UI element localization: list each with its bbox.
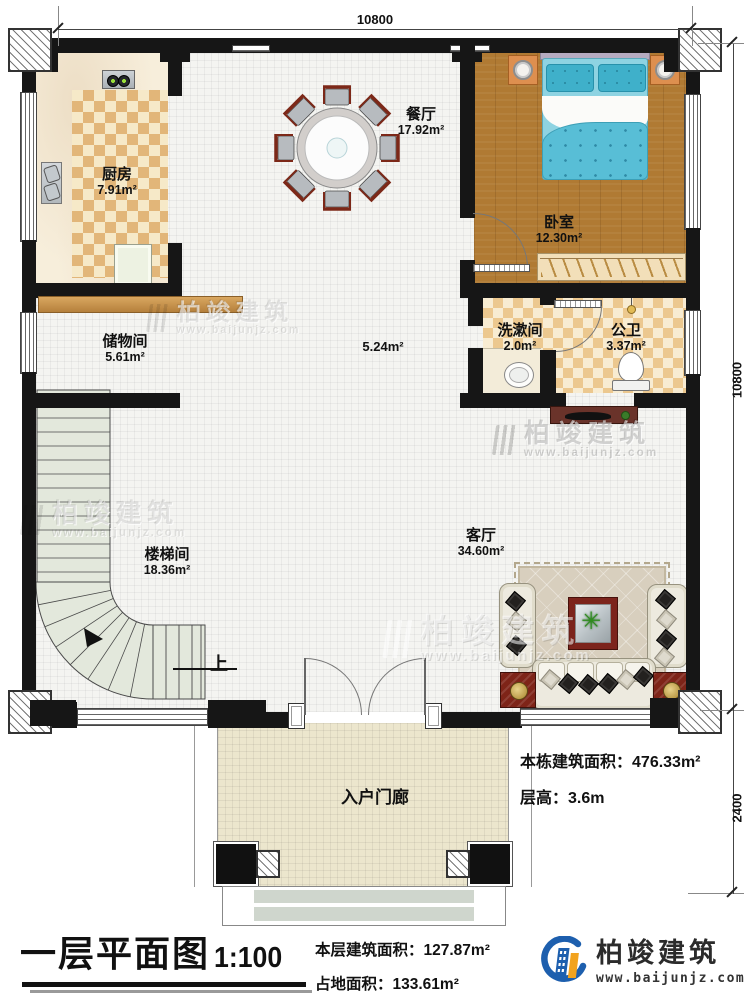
land-area-note: 占地面积：133.61m² [315,972,459,994]
porch-column [468,842,512,886]
wall [22,393,180,408]
wall [460,283,700,298]
floor-height-note: 层高：3.6m [520,784,604,808]
building-area-note: 本栋建筑面积：476.33m² [520,748,701,772]
room-label-stairwell: 楼梯间 18.36m² [144,546,191,578]
extension-line [700,710,744,711]
entry-door-post [288,703,305,729]
window [684,94,701,230]
watermark: 柏竣建筑www.baijunjz.com [385,614,591,664]
bed-pillow [546,64,594,92]
wall [262,712,290,728]
window [20,312,37,374]
dimension-tick [726,703,737,714]
ceiling-light [627,305,636,314]
corner-pier [8,28,52,72]
porch-step [252,905,476,923]
kitchen-cabinet [114,244,152,286]
scale-label: 1:100 [214,944,282,973]
wall [22,38,700,53]
end-table [500,672,536,708]
room-label-living: 客厅 34.60m² [458,527,505,559]
wall [460,38,475,218]
wall [168,38,182,96]
up-label: 上 [210,650,228,676]
room-label-toilet: 公卫 3.37m² [606,322,646,354]
entry-door-leaf [304,658,306,715]
corner-pier [678,28,722,72]
wall [442,712,522,728]
room-label-kitchen: 厨房 7.91m² [97,166,137,198]
plan-title: 一层平面图 [20,936,210,972]
watermark-logo-icon [146,304,169,332]
watermark-logo-icon [20,505,45,535]
title-underline-shadow [30,990,312,993]
footer-bar: 一层平面图 1:100 本层建筑面积：127.87m² 占地面积：133.61m… [0,930,750,1004]
extension-line [698,43,744,44]
dimension-line [58,29,692,30]
room-label-storage: 储物间 5.61m² [102,333,147,365]
wall [22,372,36,712]
room-label-dining: 餐厅 17.92m² [398,106,445,138]
corner-pier [678,690,722,734]
bedroom-door-leaf [473,264,530,272]
window [77,708,208,726]
window [520,708,652,726]
wall [686,374,700,714]
washroom-sink [504,362,534,388]
window [232,45,270,52]
floor-area-note: 本层建筑面积：127.87m² [315,938,490,960]
brand-website: www.baijunjz.com [596,972,745,985]
window [684,310,701,376]
wall [686,228,700,312]
wardrobe [537,253,686,281]
wall [468,298,483,326]
floor-plan-page: 上 [0,0,750,1004]
watermark-logo-icon [492,425,517,455]
room-label-hallway: 5.24m² [362,340,403,355]
room-label-porch: 入户门廊 [341,783,409,808]
toilet [618,352,644,382]
watermark: 柏竣建筑www.baijunjz.com [494,420,658,460]
watermark: 柏竣建筑www.baijunjz.com [22,500,186,540]
dimension-label-right-upper: 10800 [730,362,745,398]
porch-pier [256,850,280,878]
dining-table-set [272,83,402,213]
window [20,92,37,242]
dimension-label-right-lower: 2400 [730,794,745,823]
toilet-tank [612,380,650,391]
dimension-label-top: 10800 [357,12,393,27]
kitchen-sink [41,162,62,204]
room-label-washroom: 洗漱间 2.0m² [497,322,542,354]
title-underline [22,982,306,987]
porch-step [252,888,476,905]
porch-pier [446,850,470,878]
brand-name: 柏竣建筑 [596,940,720,967]
entry-door-post [425,703,442,729]
brand-logo-icon [538,936,590,988]
porch-column [214,842,258,886]
dimension-tick [726,886,737,897]
watermark-logo-icon [382,620,414,658]
dimension-line [733,44,734,894]
kitchen-stove [102,70,135,89]
wall [634,393,700,408]
watermark: 柏竣建筑www.baijunjz.com [148,300,300,337]
dimension-tick [726,36,737,47]
wall [22,240,36,314]
wall [540,350,556,393]
wall [208,700,266,728]
room-label-bedroom: 卧室 12.30m² [536,214,583,246]
bed-pillow [598,64,646,92]
nightstand [508,55,538,85]
bed-duvet [542,122,648,180]
wall [30,700,76,726]
entry-door-leaf [424,658,426,715]
extension-line [688,893,744,894]
